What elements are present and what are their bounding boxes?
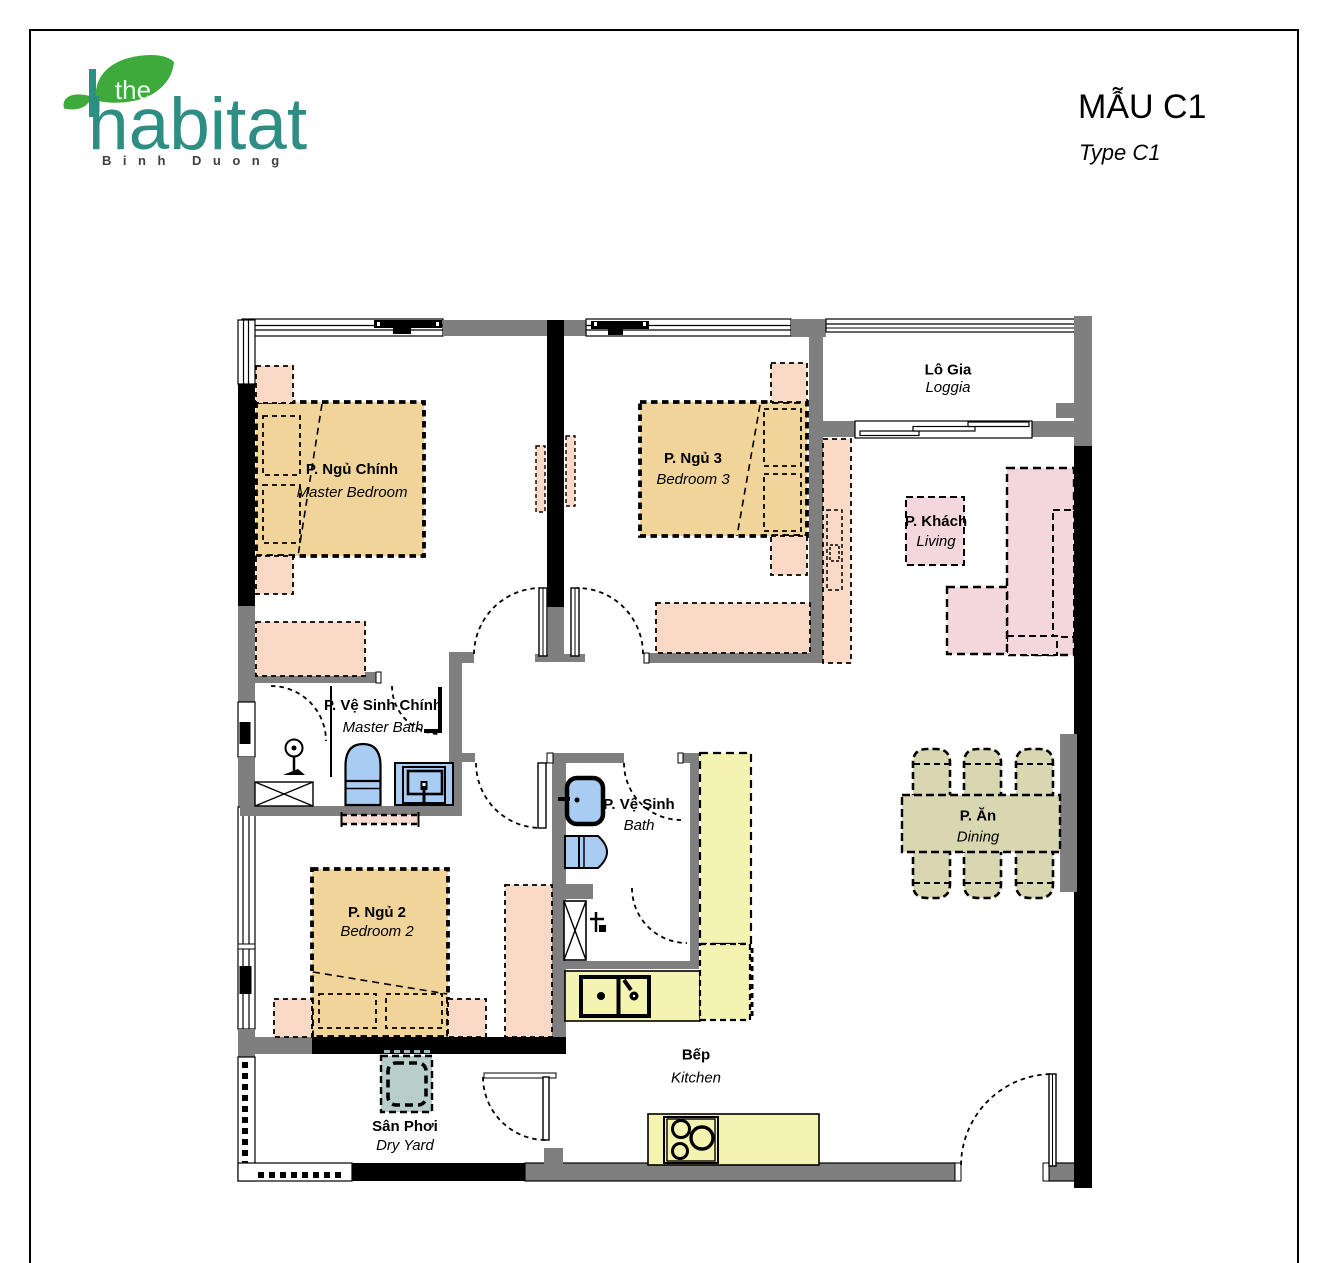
- svg-text:Loggia: Loggia: [925, 379, 970, 396]
- svg-text:P. Ngủ Chính: P. Ngủ Chính: [306, 461, 398, 478]
- svg-text:P. Ngủ 2: P. Ngủ 2: [348, 904, 406, 921]
- svg-text:MẪU C1: MẪU C1: [1078, 88, 1206, 126]
- svg-text:Binh Duong: Binh Duong: [102, 153, 291, 168]
- svg-text:Bếp: Bếp: [682, 1047, 710, 1064]
- svg-text:Dry Yard: Dry Yard: [376, 1137, 434, 1154]
- svg-text:Kitchen: Kitchen: [671, 1070, 721, 1087]
- svg-text:Type C1: Type C1: [1079, 140, 1161, 165]
- svg-text:Bedroom 2: Bedroom 2: [340, 923, 414, 940]
- svg-text:Bedroom 3: Bedroom 3: [656, 471, 730, 488]
- svg-text:Dining: Dining: [957, 829, 1000, 846]
- svg-text:Lô Gia: Lô Gia: [925, 362, 972, 379]
- svg-text:Bath: Bath: [624, 817, 655, 834]
- svg-text:Living: Living: [916, 533, 956, 550]
- svg-text:P. Ngủ 3: P. Ngủ 3: [664, 450, 722, 467]
- svg-text:P. Vệ Sinh Chính: P. Vệ Sinh Chính: [324, 697, 442, 714]
- svg-text:Master Bath: Master Bath: [343, 719, 424, 736]
- svg-text:Sân Phơi: Sân Phơi: [372, 1118, 438, 1135]
- svg-text:P. Ăn: P. Ăn: [960, 808, 996, 825]
- svg-text:P. Khách: P. Khách: [905, 513, 967, 530]
- svg-text:Master Bedroom: Master Bedroom: [297, 484, 408, 501]
- svg-text:P. Vệ Sinh: P. Vệ Sinh: [603, 796, 674, 813]
